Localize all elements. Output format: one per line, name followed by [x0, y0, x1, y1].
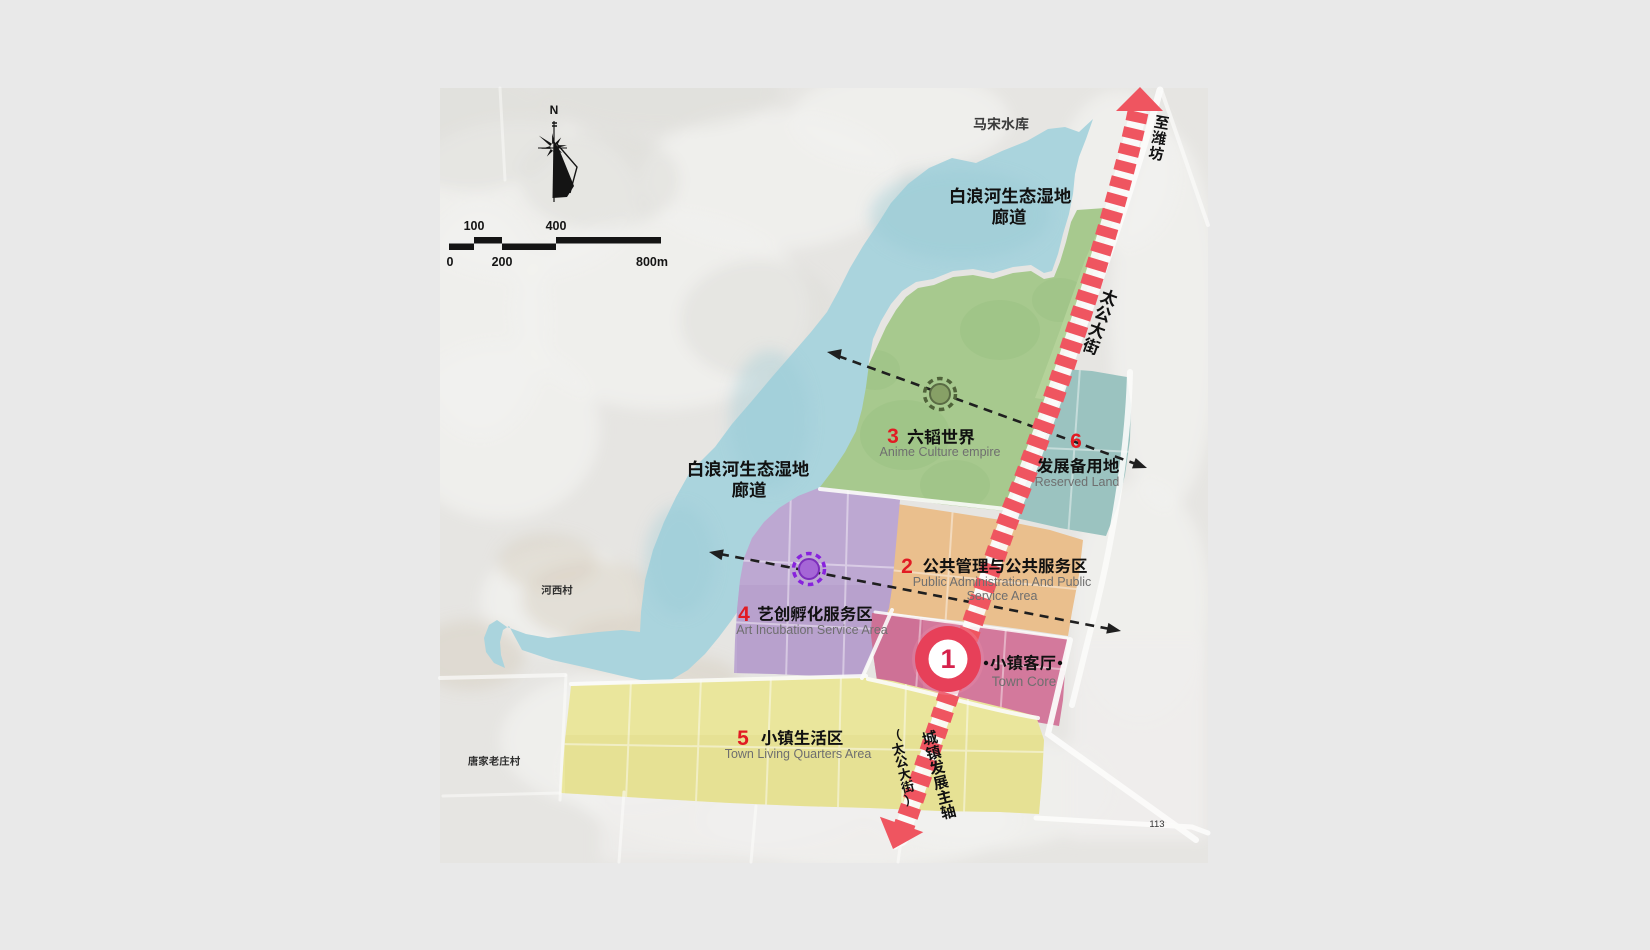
svg-text:Public Administration And Publ: Public Administration And Public	[913, 575, 1092, 589]
svg-text:Town Living Quarters Area: Town Living Quarters Area	[725, 747, 872, 761]
svg-text:800m: 800m	[636, 255, 668, 269]
svg-text:100: 100	[464, 219, 485, 233]
svg-text:Anime Culture empire: Anime Culture empire	[880, 445, 1001, 459]
svg-text:1: 1	[940, 644, 955, 674]
svg-text:N: N	[550, 103, 559, 117]
svg-text:400: 400	[546, 219, 567, 233]
svg-text:200: 200	[492, 255, 513, 269]
svg-text:113: 113	[1149, 819, 1164, 830]
svg-text:0: 0	[447, 255, 454, 269]
svg-text:Art Incubation Service Area: Art Incubation Service Area	[736, 623, 888, 637]
svg-text:Reserved Land: Reserved Land	[1035, 475, 1120, 489]
svg-text:2: 2	[901, 555, 913, 578]
svg-text:Service Area: Service Area	[967, 589, 1038, 603]
svg-text:Town Core: Town Core	[992, 674, 1057, 689]
svg-text:6: 6	[1070, 430, 1082, 453]
